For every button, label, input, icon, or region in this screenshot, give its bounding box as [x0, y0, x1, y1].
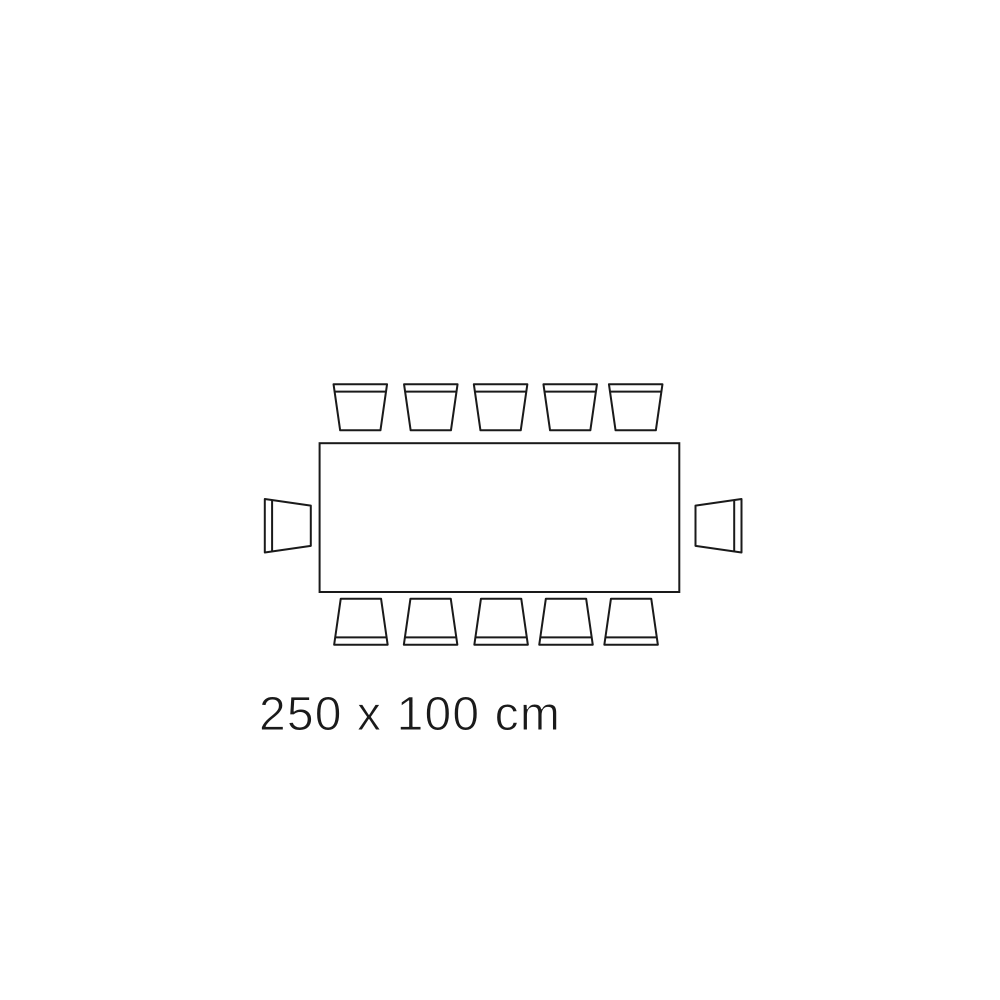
svg-text:250 x 100 cm: 250 x 100 cm: [259, 688, 561, 741]
